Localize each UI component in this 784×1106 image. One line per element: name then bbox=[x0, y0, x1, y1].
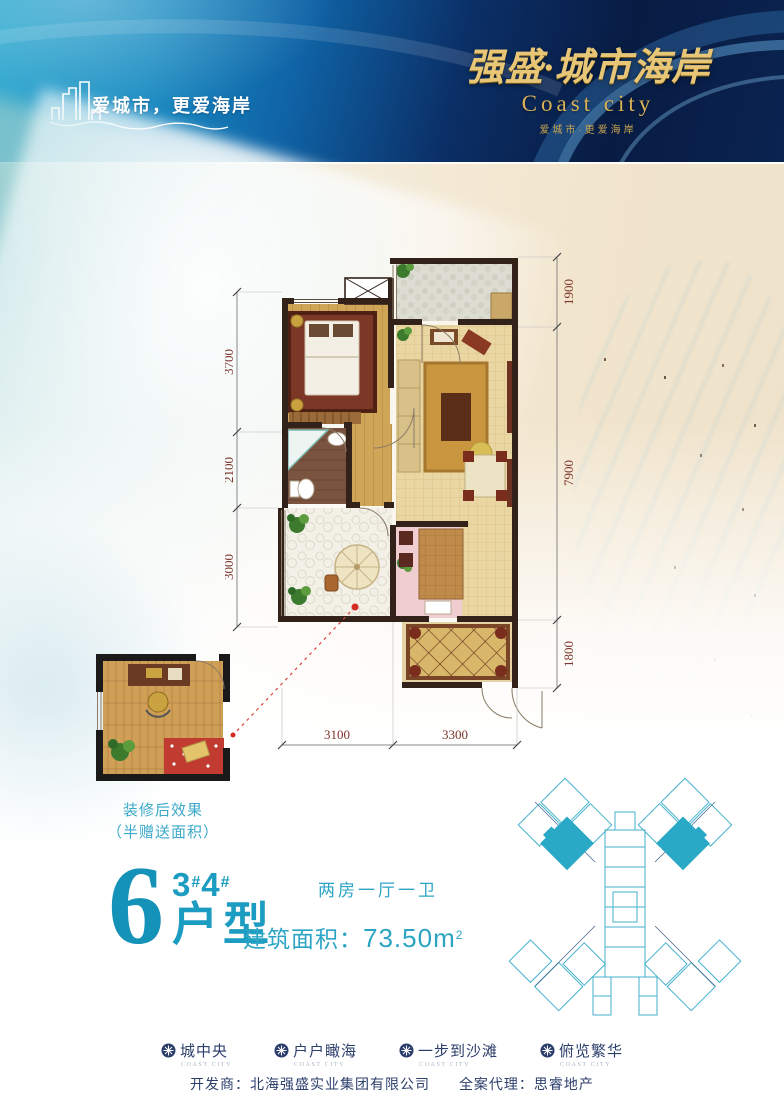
dim-bottom-3300: 3300 bbox=[442, 727, 468, 742]
unit-number: 6 bbox=[108, 856, 164, 957]
unit-area: 建筑面积：73.50m2 bbox=[243, 920, 463, 954]
dim-left-2100: 2100 bbox=[225, 457, 236, 483]
brand-logo-chinese: 强盛·城市海岸 bbox=[452, 48, 724, 90]
feature-list: 城中央 COAST CITY 户户瞰海 COAST CITY 一步到沙滩 COA… bbox=[0, 1040, 784, 1068]
entry-rug bbox=[408, 626, 508, 678]
developer-credit: 开发商：北海强盛实业集团有限公司 bbox=[190, 1076, 430, 1092]
inset-link-line bbox=[231, 604, 359, 738]
inset-caption: 装修后效果 （半赠送面积） bbox=[63, 800, 263, 844]
feature-beach-access: 一步到沙滩 COAST CITY bbox=[399, 1040, 498, 1068]
poster-page: 爱城市，更爱海岸 强盛·城市海岸 Coast city 爱城市·更爱海岸 bbox=[0, 0, 784, 1106]
feature-city-overlook: 俯览繁华 COAST CITY bbox=[540, 1040, 623, 1068]
dim-right-7900: 7900 bbox=[561, 460, 575, 486]
decorated-room-inset bbox=[88, 648, 238, 798]
inset-caption-line1: 装修后效果 bbox=[63, 800, 263, 822]
dim-bottom-3100: 3100 bbox=[324, 727, 350, 742]
feature-sea-view: 户户瞰海 COAST CITY bbox=[274, 1040, 357, 1068]
dim-left-3000: 3000 bbox=[225, 554, 236, 580]
unit-room-layout: 两房一厅一卫 bbox=[318, 876, 438, 901]
dim-right-1900: 1900 bbox=[561, 279, 575, 305]
brand-logo: 强盛·城市海岸 Coast city 爱城市·更爱海岸 bbox=[452, 48, 724, 136]
feature-city-center: 城中央 COAST CITY bbox=[161, 1040, 232, 1068]
building-site-plan bbox=[505, 772, 745, 1017]
flower-badge-icon bbox=[540, 1043, 555, 1058]
footer-credits: 开发商：北海强盛实业集团有限公司 全案代理：思睿地产 bbox=[0, 1074, 784, 1094]
brand-logo-slogan: 爱城市·更爱海岸 bbox=[452, 121, 724, 136]
flower-badge-icon bbox=[274, 1043, 289, 1058]
brand-logo-english: Coast city bbox=[452, 91, 724, 117]
flower-badge-icon bbox=[161, 1043, 176, 1058]
agency-credit: 全案代理：思睿地产 bbox=[459, 1076, 594, 1092]
inset-caption-line2: （半赠送面积） bbox=[63, 822, 263, 844]
bedroom-furniture bbox=[289, 313, 375, 424]
dim-right-1800: 1800 bbox=[561, 641, 575, 667]
flower-badge-icon bbox=[399, 1043, 414, 1058]
floorplan: 3700 2100 3000 1900 7900 1800 3100 3300 bbox=[225, 245, 575, 765]
dim-left-3700: 3700 bbox=[225, 349, 236, 375]
highlighted-units bbox=[537, 814, 712, 871]
